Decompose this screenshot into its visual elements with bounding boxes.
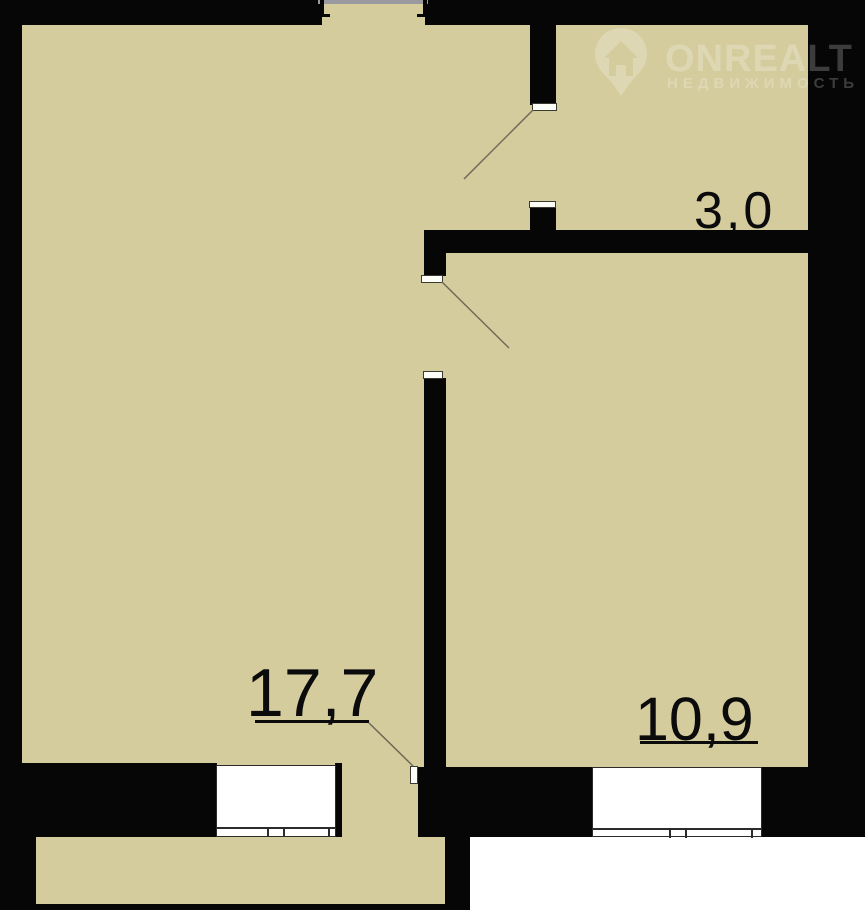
door-jamb-balcony: [410, 766, 418, 784]
window-frame-tick: [283, 827, 285, 837]
window-frame-tick: [669, 828, 671, 838]
room-area-underline-10-9: [640, 741, 758, 744]
floor-plan-canvas: 17,7 10,9 3,0: [0, 0, 865, 910]
door-jamb-stub-upper-top: [529, 201, 556, 208]
wall-balcony-left: [0, 837, 36, 910]
window-frame-tick: [685, 828, 687, 838]
room-area-label-17-7: 17,7: [246, 659, 378, 727]
wall-corridor: [424, 230, 808, 253]
entry-opening-jamb-left-foot: [320, 14, 330, 17]
house-pin-icon: [595, 28, 647, 96]
wall-stub-lower: [424, 253, 446, 276]
window-frame-tick: [751, 828, 753, 838]
wall-entry-stub: [530, 25, 556, 105]
wall-window1-right-post: [335, 763, 342, 837]
wall-middle: [424, 378, 446, 767]
wall-room2-sill-right: [762, 767, 808, 837]
wall-balcony-door-block: [418, 767, 467, 837]
watermark-brand: ONREALT: [665, 40, 853, 78]
wall-right: [808, 25, 865, 837]
wall-left: [0, 25, 22, 763]
window-frame-tick: [328, 827, 330, 837]
window-frame-tick: [267, 827, 269, 837]
entry-opening-jamb-right-foot: [417, 14, 427, 17]
window-room-17-7: [216, 765, 336, 837]
entry-opening-top-line: [318, 0, 428, 4]
watermark: ONREALT НЕДВИЖИМОСТЬ: [592, 25, 852, 100]
wall-room2-sill-left: [467, 767, 592, 837]
wall-balcony-bottom: [30, 904, 445, 910]
door-jamb-corridor: [421, 275, 443, 283]
window-room-10-9: [592, 767, 762, 837]
watermark-tagline: НЕДВИЖИМОСТЬ: [667, 76, 859, 91]
wall-bottom-left-band: [0, 763, 217, 837]
wall-stub-upper: [530, 207, 556, 230]
wall-top-left: [0, 0, 322, 25]
floor-balcony: [0, 837, 470, 910]
room-area-underline-17-7: [255, 720, 369, 723]
window-sill-line: [593, 828, 761, 830]
wall-top-right: [425, 0, 865, 25]
door-jamb-entry: [532, 103, 557, 111]
wall-balcony-right: [445, 837, 470, 910]
door-jamb-middle-wall-top: [423, 371, 443, 379]
window-sill-line: [217, 827, 335, 829]
